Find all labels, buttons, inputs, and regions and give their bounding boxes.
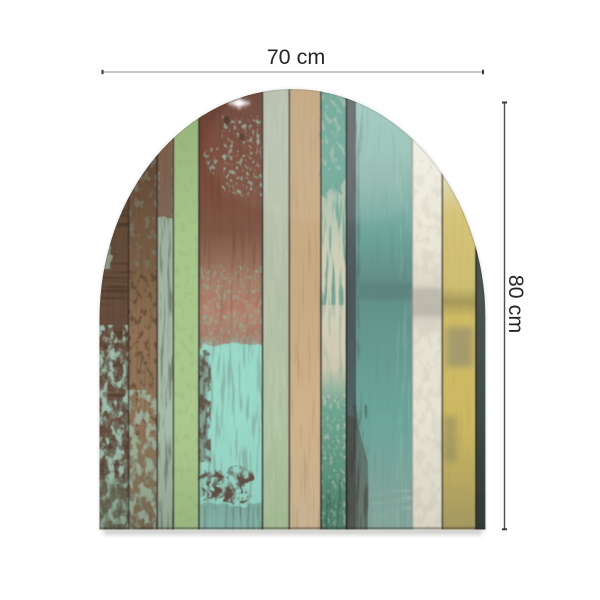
svg-text:80 cm: 80 cm	[504, 275, 528, 334]
svg-text:70 cm: 70 cm	[267, 45, 326, 69]
